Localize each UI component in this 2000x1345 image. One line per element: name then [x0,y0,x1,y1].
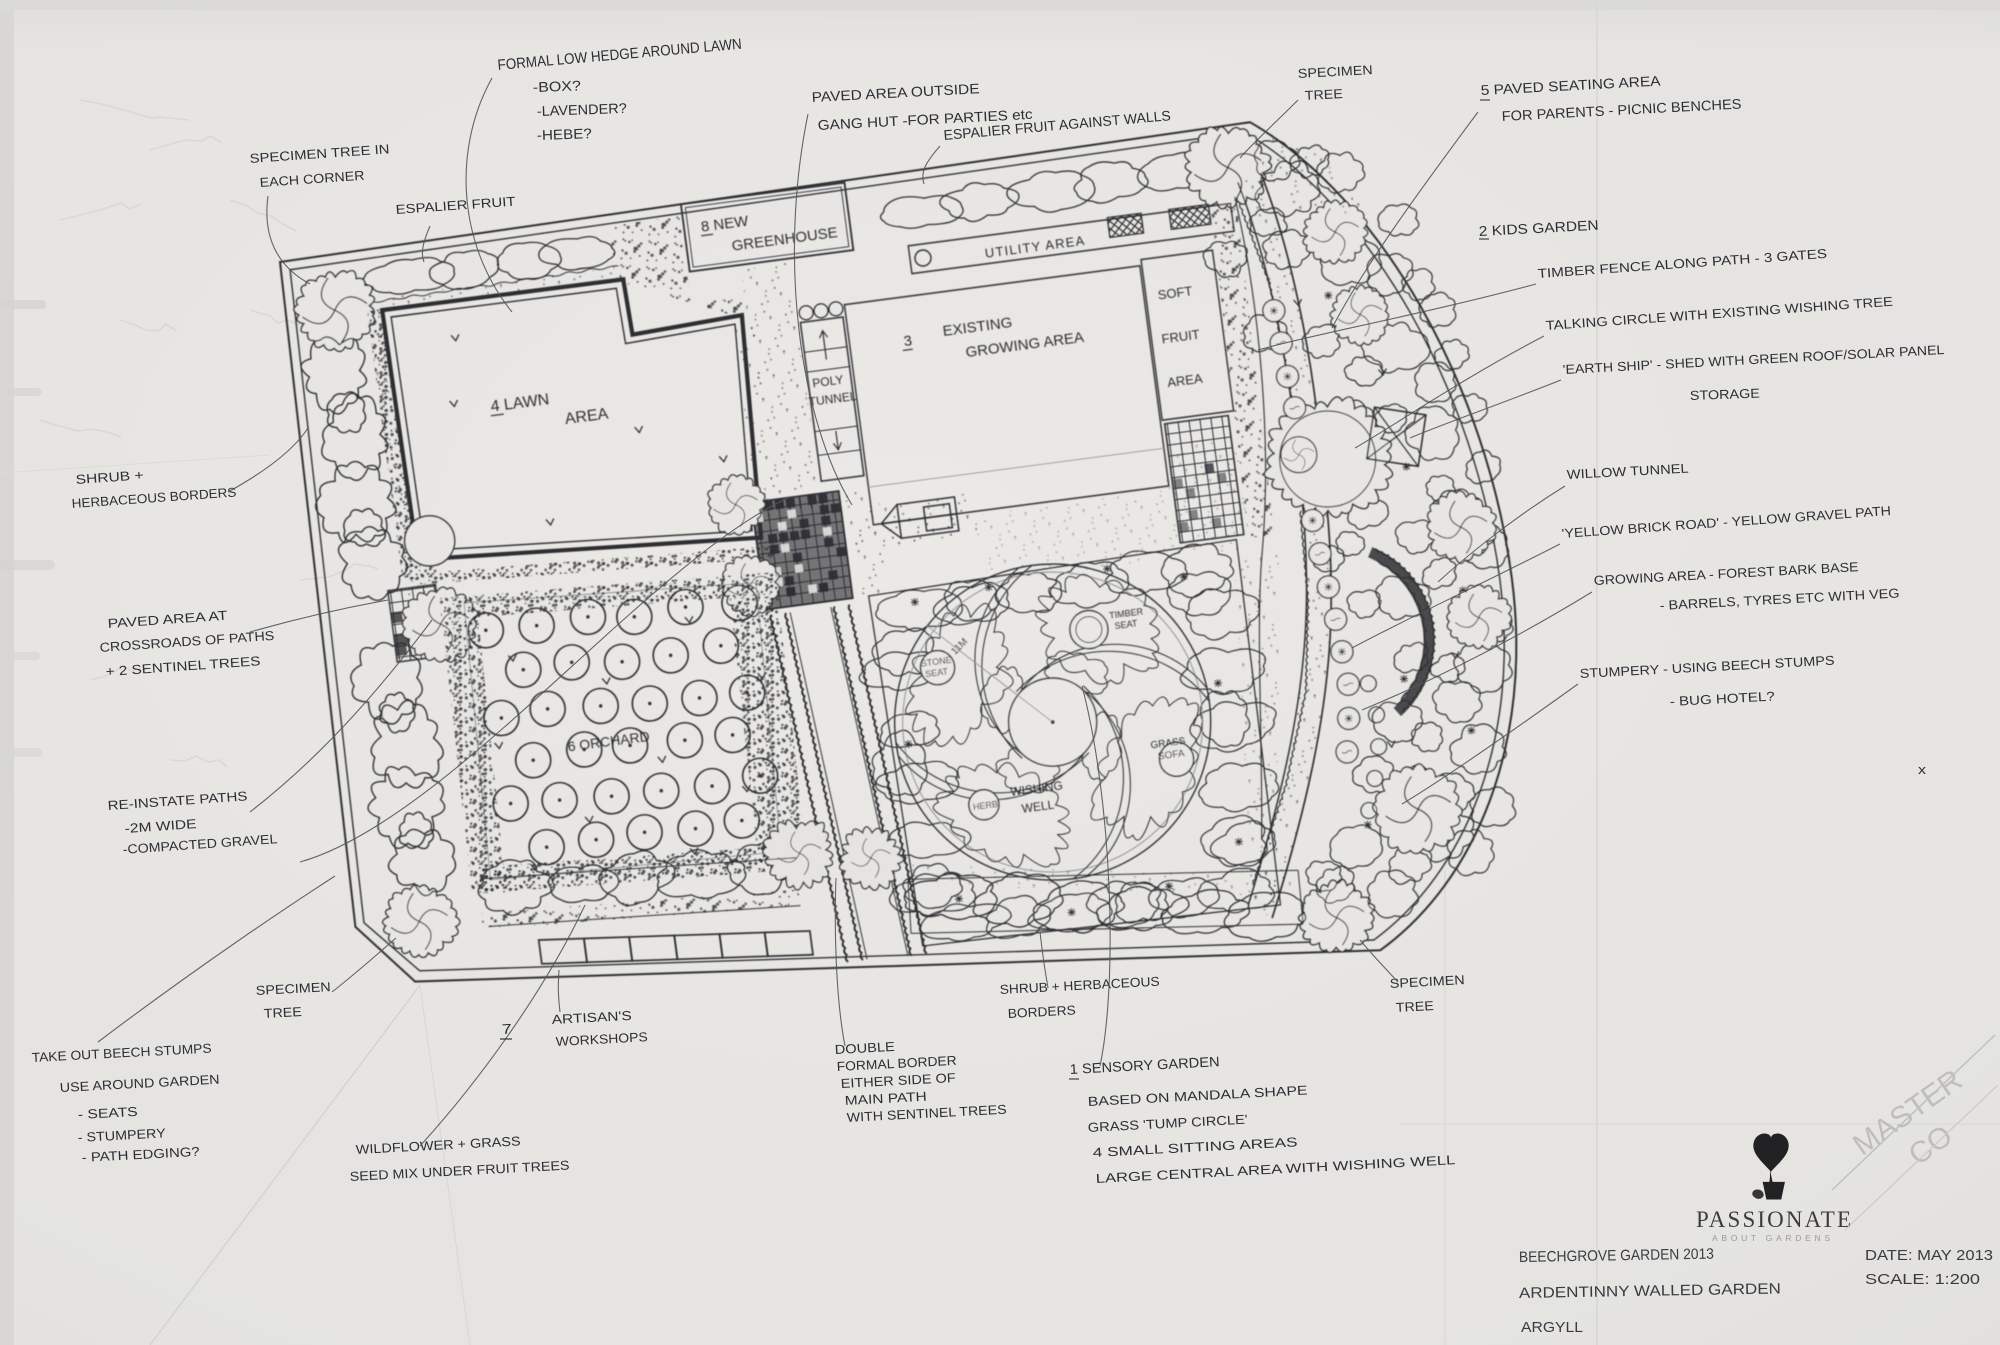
svg-text:ARGYLL: ARGYLL [1521,1319,1583,1336]
svg-text:x: x [1918,762,1927,777]
svg-text:TREE: TREE [263,1004,302,1021]
svg-text:DOUBLE: DOUBLE [834,1039,895,1057]
svg-text:TREE: TREE [1304,86,1343,103]
svg-text:PASSIONATE: PASSIONATE [1696,1207,1854,1232]
svg-text:STORAGE: STORAGE [1690,386,1761,403]
svg-text:ABOUT GARDENS: ABOUT GARDENS [1712,1233,1834,1243]
svg-text:-BOX?: -BOX? [533,77,582,95]
svg-text:SCALE: 1:200: SCALE: 1:200 [1865,1271,1980,1288]
svg-text:- SEATS: - SEATS [77,1104,138,1122]
svg-text:TREE: TREE [1395,998,1434,1015]
svg-text:BEECHGROVE GARDEN 2013: BEECHGROVE GARDEN 2013 [1519,1246,1714,1266]
svg-text:-HEBE?: -HEBE? [537,125,593,143]
svg-text:-LAVENDER?: -LAVENDER? [537,100,628,119]
svg-text:7: 7 [501,1020,512,1037]
svg-text:DATE: MAY 2013: DATE: MAY 2013 [1865,1247,1993,1264]
